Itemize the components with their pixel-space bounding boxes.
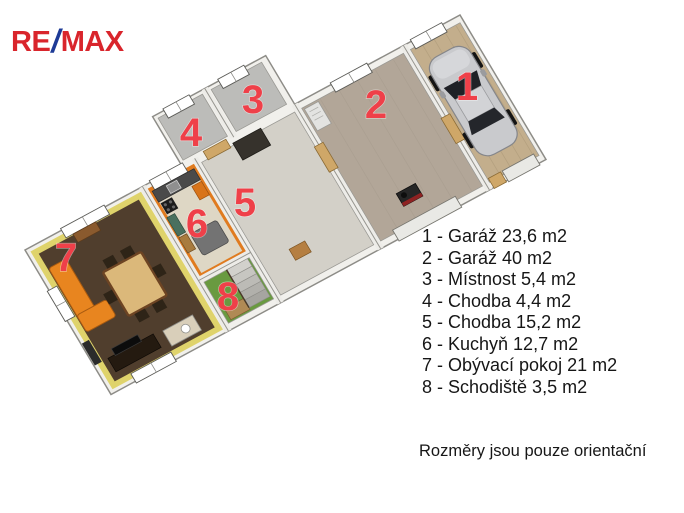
- legend-item-8: 8 - Schodiště 3,5 m2: [422, 377, 617, 399]
- legend-item-2: 2 - Garáž 40 m2: [422, 248, 617, 270]
- room-number-7: 7: [55, 236, 77, 280]
- legend-item-7: 7 - Obývací pokoj 21 m2: [422, 355, 617, 377]
- room-number-5: 5: [234, 181, 256, 225]
- room-number-4: 4: [180, 111, 203, 155]
- room-number-1: 1: [456, 65, 478, 109]
- legend-item-4: 4 - Chodba 4,4 m2: [422, 291, 617, 313]
- room-number-8: 8: [217, 275, 239, 319]
- legend-item-5: 5 - Chodba 15,2 m2: [422, 312, 617, 334]
- room-legend: 1 - Garáž 23,6 m2 2 - Garáž 40 m2 3 - Mí…: [422, 226, 617, 398]
- legend-item-1: 1 - Garáž 23,6 m2: [422, 226, 617, 248]
- disclaimer-note: Rozměry jsou pouze orientační: [419, 442, 646, 461]
- room-number-3: 3: [242, 78, 264, 122]
- floorplan-page: RE/MAX: [0, 0, 684, 513]
- room-number-2: 2: [365, 83, 387, 127]
- legend-item-3: 3 - Místnost 5,4 m2: [422, 269, 617, 291]
- legend-item-6: 6 - Kuchyň 12,7 m2: [422, 334, 617, 356]
- room-number-6: 6: [186, 202, 208, 246]
